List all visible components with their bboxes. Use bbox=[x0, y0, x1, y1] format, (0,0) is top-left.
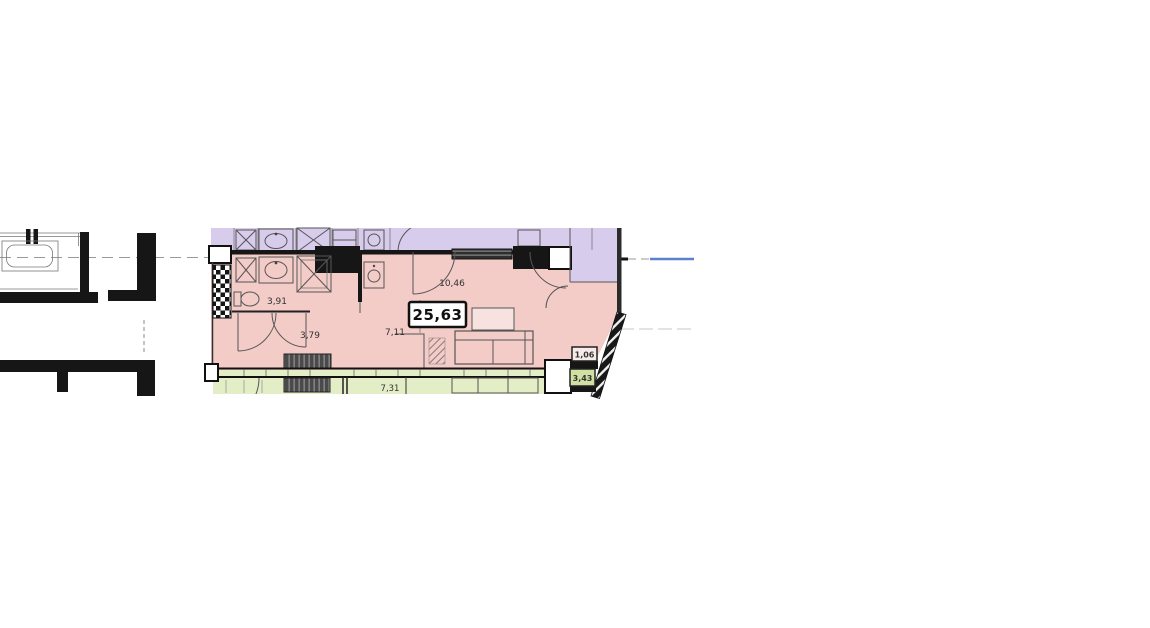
radiator-icon bbox=[284, 354, 331, 368]
table-icon bbox=[472, 308, 514, 330]
radiator-icon bbox=[284, 378, 330, 392]
area-label-balcony-upper: 1,06 bbox=[575, 351, 595, 360]
floor-plan-screenshot: 3,91 3,79 7,11 10,46 25,63 bbox=[0, 0, 1150, 628]
wall-segment bbox=[0, 292, 98, 303]
area-label-hallway: 3,79 bbox=[300, 331, 320, 341]
window-end-cap bbox=[205, 364, 218, 381]
area-label-bathroom: 3,91 bbox=[267, 297, 287, 307]
structural-column bbox=[315, 246, 360, 273]
neighbor-building-left bbox=[0, 229, 156, 396]
wall-segment bbox=[0, 360, 155, 372]
neighbor-corner-room bbox=[570, 228, 618, 282]
plant-icon bbox=[429, 338, 445, 364]
riser-shaft bbox=[213, 265, 231, 318]
balcony-badges: 1,06 3,43 bbox=[570, 347, 598, 392]
bathtub-icon bbox=[2, 241, 58, 271]
area-label-kitchen: 7,11 bbox=[385, 328, 405, 338]
total-area-value: 25,63 bbox=[413, 306, 463, 324]
window-box bbox=[549, 247, 571, 269]
door-jamb-mark bbox=[26, 229, 31, 244]
area-label-balcony-lower: 3,43 bbox=[573, 374, 593, 383]
apartment-unit: 3,91 3,79 7,11 10,46 25,63 bbox=[205, 223, 626, 422]
wall-stub bbox=[57, 372, 68, 392]
right-edge-wall bbox=[617, 228, 622, 315]
structural-column bbox=[513, 246, 550, 269]
lintel-beam bbox=[452, 249, 512, 259]
bathroom-wall bbox=[358, 252, 362, 302]
wall-segment bbox=[137, 233, 156, 292]
door-jamb-mark bbox=[34, 229, 39, 244]
unit-below-strip bbox=[213, 370, 545, 394]
window-box bbox=[209, 246, 231, 263]
area-label-living-room: 10,46 bbox=[439, 279, 465, 289]
wall-segment bbox=[80, 232, 89, 294]
wall-column bbox=[545, 360, 571, 393]
floor-plan: 3,91 3,79 7,11 10,46 25,63 bbox=[0, 0, 1150, 628]
wall-segment bbox=[108, 290, 156, 301]
area-label-unit-below: 7,31 bbox=[381, 384, 400, 394]
wall-stub bbox=[137, 372, 155, 396]
